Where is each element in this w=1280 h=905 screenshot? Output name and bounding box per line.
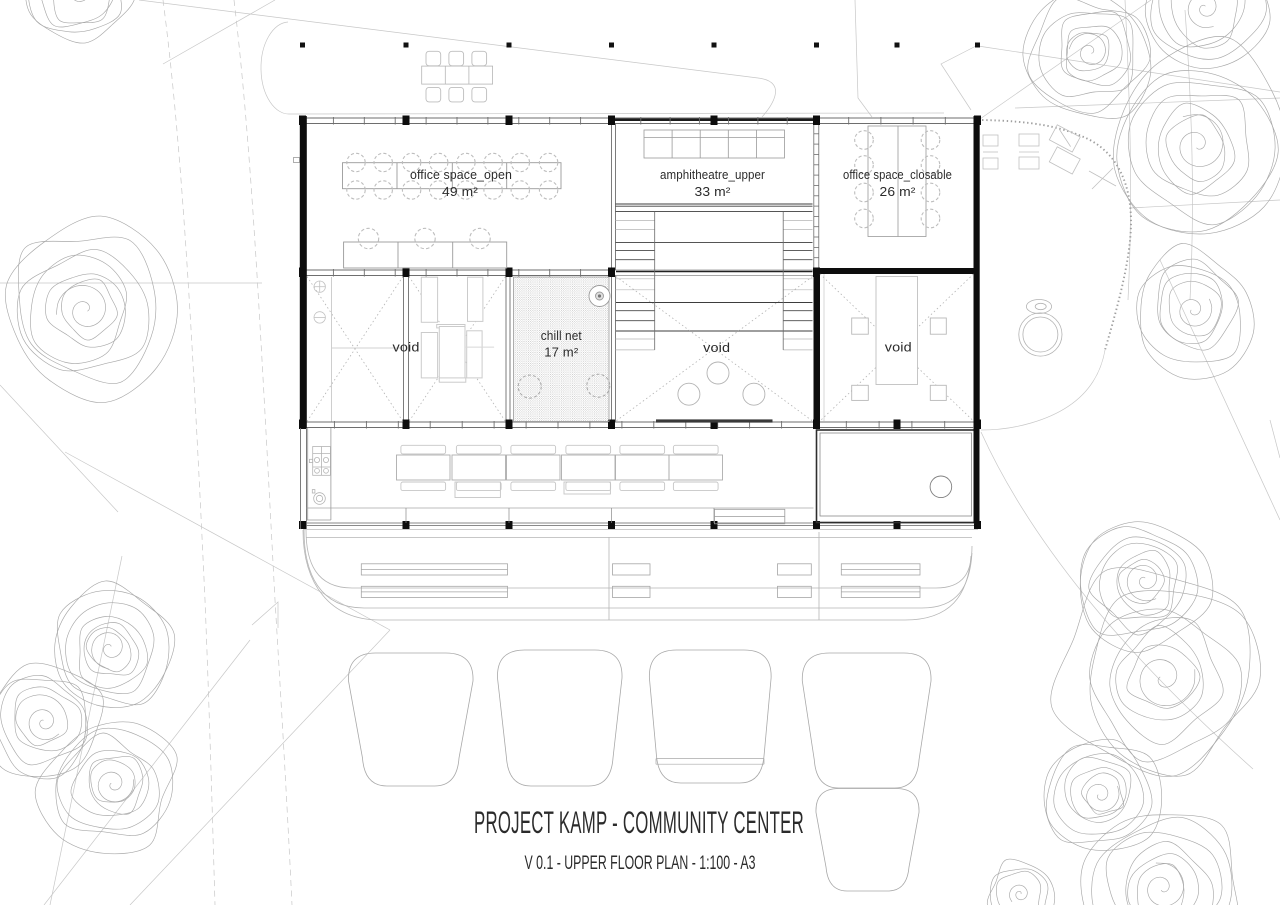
svg-text:V 0.1 - UPPER FLOOR PLAN - 1:1: V 0.1 - UPPER FLOOR PLAN - 1:100 - A3	[525, 853, 756, 874]
svg-text:office space_closable: office space_closable	[843, 168, 952, 182]
svg-text:49 m²: 49 m²	[442, 185, 478, 199]
svg-text:17 m²: 17 m²	[544, 345, 578, 359]
svg-text:amphitheatre_upper: amphitheatre_upper	[660, 168, 765, 182]
svg-text:void: void	[703, 341, 730, 355]
svg-text:void: void	[885, 341, 912, 355]
svg-text:26 m²: 26 m²	[880, 185, 916, 199]
svg-text:void: void	[393, 341, 420, 355]
svg-text:office space_open: office space_open	[410, 168, 512, 182]
svg-text:chill net: chill net	[541, 329, 582, 343]
svg-text:PROJECT KAMP - COMMUNITY CENTE: PROJECT KAMP - COMMUNITY CENTER	[474, 804, 804, 840]
svg-text:33 m²: 33 m²	[695, 185, 731, 199]
